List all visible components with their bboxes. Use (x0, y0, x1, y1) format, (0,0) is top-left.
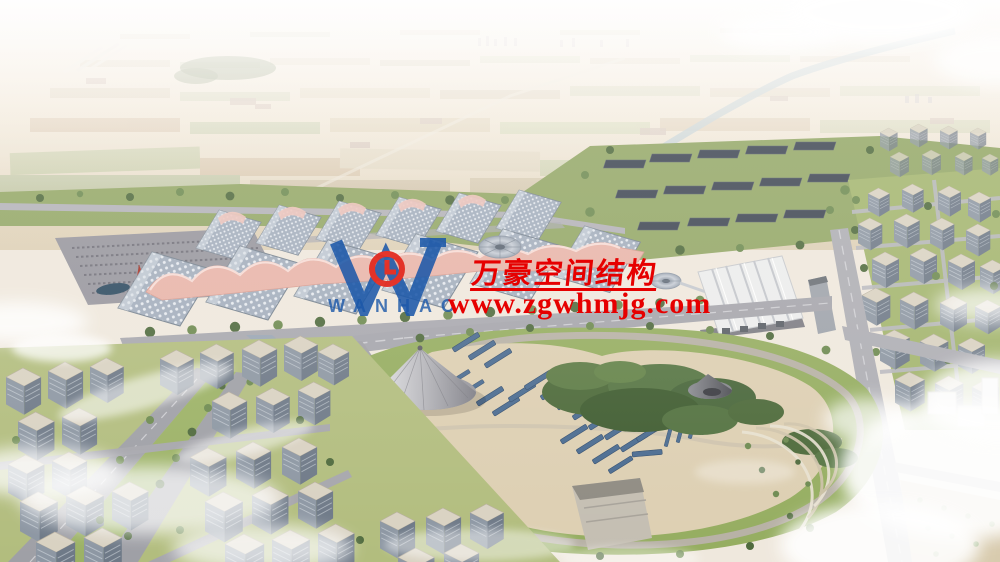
scene-canvas (0, 0, 1000, 562)
warm-haze-overlay (0, 0, 1000, 562)
aerial-render-image: WANHAO 万豪空间结构 www.zgwhmjg.com (0, 0, 1000, 562)
